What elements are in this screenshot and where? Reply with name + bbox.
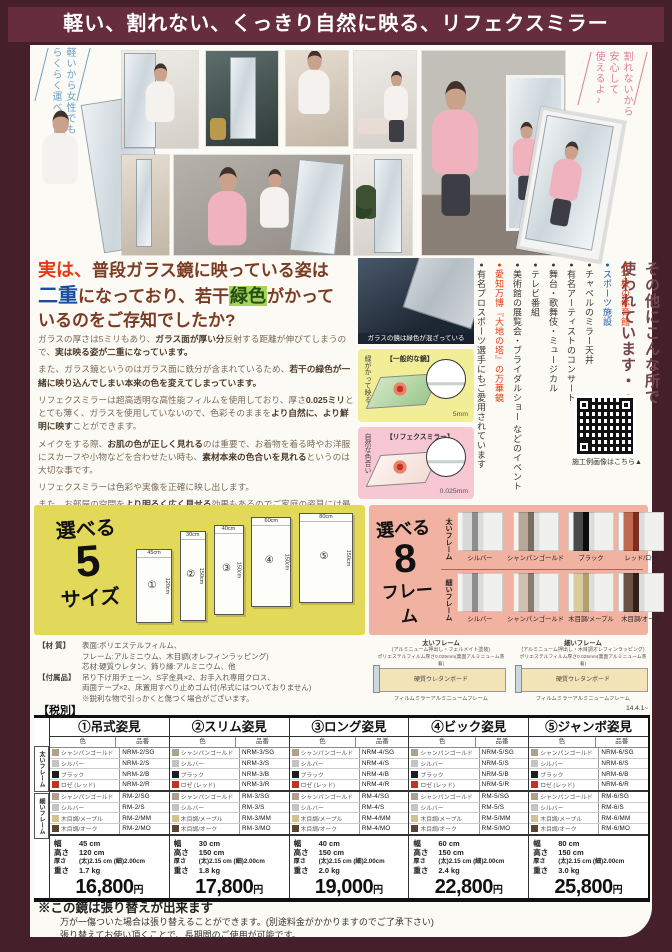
- product-row: 木目調/オークRM-2/MO: [50, 824, 169, 836]
- product-code: RM-5/SG: [479, 792, 529, 802]
- product-code: NRM-5/B: [479, 769, 529, 779]
- size-mirror: 40cm150cm③: [214, 525, 244, 615]
- version-label: 14.4.1~: [626, 705, 648, 712]
- color-chip: [172, 793, 179, 800]
- accessories-label: 【付属品】: [38, 673, 82, 705]
- magnifier-circle: [426, 359, 466, 399]
- color-chip: [411, 815, 418, 822]
- price-column-header: ②スリム姿見: [170, 718, 289, 737]
- spec-label: 重さ: [533, 866, 558, 876]
- note-line: 安心して: [605, 51, 619, 161]
- intro-headline: 実は、普段ガラス鏡に映っている姿は二重になっており、若干緑色がかっているのをご存…: [38, 258, 362, 333]
- product-code: NRM-5/S: [479, 759, 529, 769]
- width-label: 60cm: [252, 518, 290, 526]
- bullet-icon: ●: [586, 262, 593, 270]
- spec-block: 幅60 cm高さ150 cm厚さ(太)2.15 cm (細)2.00cm重さ2.…: [409, 836, 528, 876]
- body-paragraph: また、ガラス鏡というのはガラス面に鉄分が含まれているため、若干の緑色が一緒に映り…: [38, 363, 356, 389]
- qr-finder-pattern: [577, 398, 591, 412]
- frame-swatch-image: [457, 573, 503, 612]
- color-name: 木目調/オーク: [540, 824, 598, 833]
- color-name: シャンパンゴールド: [61, 792, 119, 801]
- product-row: ブラックNRM-3/B: [170, 769, 289, 780]
- thin-frame-row: 細いフレーム シルバーシャンパンゴールド木目調/メープル木目調/オーク: [441, 569, 643, 630]
- spec-value: (太)2.15 cm (細)2.00cm: [438, 858, 504, 866]
- frame-swatch: ブラック: [568, 512, 614, 567]
- accessories-lines: 吊り下げ用チェーン、S字金具×2、お手入れ専用クロス、 両面テープ×2、床置用す…: [82, 673, 311, 705]
- usage-item: ●有名プロスポーツ選手にもご愛用されています: [474, 262, 488, 502]
- frame-swatch-image: [568, 512, 614, 551]
- spec-value: 45 cm: [79, 839, 100, 849]
- footer-note: ※この鏡は張り替えが出来ます 万が一傷ついた場合は張り替えることができます。(別…: [38, 897, 642, 942]
- color-name: シルバー: [301, 803, 359, 812]
- product-code: RM-3/SG: [239, 792, 289, 802]
- spec-label: 高さ: [54, 848, 79, 858]
- color-name: シルバー: [181, 759, 239, 768]
- spec-line: 高さ150 cm: [174, 848, 286, 858]
- spec-value: 60 cm: [438, 839, 459, 849]
- spec-value: 150 cm: [319, 848, 344, 858]
- body-paragraph: リフェクスミラーは色彩や実像を正確に映し出します。: [38, 481, 356, 494]
- thin-frame-label: 細いフレーム: [441, 570, 455, 630]
- thin-frame-cross-section: 細いフレーム (アルミニューム押出し・木目調オレフィンラッピング) ポリエステル…: [518, 638, 648, 704]
- color-name: シャンパンゴールド: [301, 792, 359, 801]
- color-name: ロゼ (レッド): [420, 780, 478, 789]
- product-code: NRM-2/S: [119, 759, 169, 769]
- usage-item: ●美術館の展覧会・ブライダルショー などのイベント: [510, 262, 524, 502]
- subheader-code: 品番: [595, 737, 648, 747]
- stroke-line: [577, 52, 591, 106]
- product-row: 木目調/オークRM-3/MO: [170, 824, 289, 836]
- mirror-shape: [230, 57, 256, 139]
- footer-title: ※この鏡は張り替えが出来ます: [38, 897, 642, 916]
- product-row: ロゼ (レッド)NRM-5/R: [409, 780, 528, 792]
- accessories-line: 吊り下げ用チェーン、S字金具×2、お手入れ専用クロス、: [82, 673, 311, 684]
- product-code: RM-4/MM: [359, 813, 409, 823]
- footer-line: 張り替えてお使い頂くことで、長期間のご使用が可能です。: [60, 929, 642, 942]
- paragraph-segment: また、ガラス鏡というのはガラス面に鉄分が含まれているため、: [38, 364, 289, 374]
- spec-line: 高さ150 cm: [533, 848, 645, 858]
- product-row: 木目調/メープルRM-6/MM: [529, 813, 648, 824]
- color-name: シャンパンゴールド: [540, 792, 598, 801]
- frame-swatch: 木目調/メープル: [568, 573, 614, 628]
- price-subheader: 色品番: [50, 737, 169, 748]
- bullet-icon: ●: [514, 262, 521, 270]
- mirror-shape: [136, 159, 152, 247]
- product-code: RM-6/MO: [598, 824, 648, 834]
- spec-value: 40 cm: [319, 839, 340, 849]
- product-row: シルバーRM-3/S: [170, 803, 289, 814]
- price-column: ⑤ジャンボ姿見色品番シャンパンゴールドNRM-6/SGシルバーNRM-6/Sブラ…: [528, 718, 648, 898]
- usage-item-label: チャペルのミラー天井: [584, 270, 594, 365]
- spec-label: 厚さ: [533, 858, 558, 866]
- product-row: 木目調/メープルRM-4/MM: [290, 813, 409, 824]
- photo-glass-mirror-edge: ガラスの鏡は緑色が混ざっている: [358, 258, 474, 344]
- headline-segment: になっており、若干: [78, 287, 229, 306]
- product-row: シルバーRM-6/S: [529, 803, 648, 814]
- color-chip: [411, 804, 418, 811]
- color-name: シャンパンゴールド: [301, 748, 359, 757]
- width-label: 40cm: [215, 526, 243, 534]
- color-chip: [172, 760, 179, 767]
- frame-swatch-label: レッド/ロゼ: [624, 553, 657, 562]
- group-label-thick: 太いフレーム: [34, 746, 49, 792]
- spec-value: 3.0 kg: [558, 866, 579, 876]
- product-code: RM-6/S: [598, 803, 648, 813]
- color-name: 木目調/メープル: [540, 814, 598, 823]
- spec-line: 高さ150 cm: [294, 848, 406, 858]
- person-figure: [146, 63, 175, 122]
- spec-label: 厚さ: [54, 858, 79, 866]
- color-chip: [52, 749, 59, 756]
- product-row: 木目調/メープルRM-5/MM: [409, 813, 528, 824]
- product-row: ブラックNRM-4/B: [290, 769, 409, 780]
- bullet-icon: ●: [622, 262, 629, 270]
- color-name: シルバー: [540, 759, 598, 768]
- frame-swatch: 木目調/オーク: [618, 573, 664, 628]
- product-row: 木目調/オークRM-4/MO: [290, 824, 409, 836]
- product-code: RM-2/MO: [119, 824, 169, 834]
- photo-hallway-mirror: [206, 51, 278, 146]
- bullet-icon: ●: [478, 262, 485, 270]
- body-paragraph: リフェクスミラーは超高透明な高性能フィルムを使用しており、厚さ0.025ミリとと…: [38, 394, 356, 434]
- product-code: NRM-3/S: [239, 759, 289, 769]
- yen-suffix: 円: [253, 885, 263, 896]
- yen-suffix: 円: [493, 885, 503, 896]
- spec-block: 幅40 cm高さ150 cm厚さ(太)2.15 cm (細)2.00cm重さ2.…: [290, 836, 409, 876]
- color-chip: [292, 804, 299, 811]
- product-row: シルバーNRM-2/S: [50, 759, 169, 770]
- color-chip: [531, 804, 538, 811]
- price-column-header: ⑤ジャンボ姿見: [529, 718, 648, 737]
- thick-frame-row: 太いフレーム シルバーシャンパンゴールドブラックレッド/ロゼ: [441, 509, 643, 569]
- materials-section: 【材 質】 表面:ポリエステルフィルム、 フレーム:アルミニウム、木目調(オレフ…: [38, 641, 372, 704]
- paragraph-segment: ことができます。: [73, 421, 142, 431]
- headline-line: いるのをご存知でしたか?: [38, 310, 362, 333]
- product-row: シルバーNRM-5/S: [409, 759, 528, 770]
- spec-value: 150 cm: [438, 848, 463, 858]
- color-chip: [531, 793, 538, 800]
- spec-label: 厚さ: [174, 858, 199, 866]
- mirror-shape: [289, 159, 344, 255]
- color-chip: [172, 771, 179, 778]
- color-name: シルバー: [301, 759, 359, 768]
- product-row: シャンパンゴールドRM-5/SG: [409, 792, 528, 803]
- bullet-icon: ●: [496, 262, 503, 270]
- spec-label: 厚さ: [413, 858, 438, 866]
- frame-swatch-image: [618, 512, 664, 551]
- usage-item-label: 舞台・歌舞伎・ミュージカル: [548, 270, 558, 394]
- frame-swatch-image: [568, 573, 614, 612]
- spec-line: 重さ1.7 kg: [54, 866, 166, 876]
- spec-label: 幅: [533, 839, 558, 849]
- color-name: 木目調/メープル: [301, 814, 359, 823]
- color-chip: [292, 815, 299, 822]
- materials-line: 芯材:硬質ウレタン、飾り縁:アルミニウム、他: [82, 662, 269, 673]
- qr-finder-pattern: [577, 440, 591, 454]
- headline-segment: 実は、: [38, 260, 92, 280]
- product-row: 木目調/メープルRM-2/MM: [50, 813, 169, 824]
- spec-value: 2.0 kg: [319, 866, 340, 876]
- product-row: シルバーNRM-3/S: [170, 759, 289, 770]
- frame-swatch-label: 木目調/メープル: [568, 614, 613, 623]
- price-value: 22,800円: [409, 876, 528, 898]
- color-name: 木目調/メープル: [61, 814, 119, 823]
- product-row: シルバーNRM-4/S: [290, 759, 409, 770]
- color-chip: [531, 760, 538, 767]
- spec-value: (太)2.15 cm (細)2.00cm: [199, 858, 265, 866]
- materials-label: 【材 質】: [38, 641, 82, 673]
- color-name: シルバー: [540, 803, 598, 812]
- thick-frame-swatches: シルバーシャンパンゴールドブラックレッド/ロゼ: [455, 509, 664, 569]
- price-column-header: ①吊式姿見: [50, 718, 169, 737]
- usage-item: ●テレビ番組: [528, 262, 542, 502]
- frame-swatch-image: [513, 512, 559, 551]
- price-subheader: 色品番: [409, 737, 528, 748]
- photo-caption: ガラスの鏡は緑色が混ざっている: [358, 333, 474, 344]
- price-number: 16,800: [75, 876, 133, 898]
- color-name: ブラック: [540, 770, 598, 779]
- product-row: シャンパンゴールドRM-6/SG: [529, 792, 648, 803]
- color-chip: [52, 815, 59, 822]
- product-row: ブラックNRM-2/B: [50, 769, 169, 780]
- magnifier-circle: [426, 437, 466, 477]
- spec-value: 30 cm: [199, 839, 220, 849]
- color-chip: [172, 749, 179, 756]
- spec-value: 1.8 kg: [199, 866, 220, 876]
- price-column-header: ④ビック姿見: [409, 718, 528, 737]
- product-row: 木目調/オークRM-5/MO: [409, 824, 528, 836]
- frame-note: フィルムミラーアルミニュームフレーム: [518, 694, 648, 702]
- color-chip: [52, 781, 59, 788]
- price-value: 19,000円: [290, 876, 409, 898]
- paragraph-segment: リフェクスミラーは色彩や実像を正確に映し出します。: [38, 482, 254, 492]
- bullet-icon: ●: [550, 262, 557, 270]
- usage-item-label: 愛知万博『大地の塔』の万華鏡: [494, 270, 504, 403]
- yen-suffix: 円: [133, 885, 143, 896]
- spec-line: 厚さ(太)2.15 cm (細)2.00cm: [533, 858, 645, 866]
- spec-line: 高さ150 cm: [413, 848, 525, 858]
- product-code: NRM-3/R: [239, 780, 289, 790]
- color-name: 木目調/オーク: [301, 824, 359, 833]
- qr-caption: 施工例画像はこちら▲: [555, 457, 659, 467]
- subheader-code: 品番: [475, 737, 528, 747]
- product-code: RM-6/SG: [598, 792, 648, 802]
- product-code: NRM-4/R: [359, 780, 409, 790]
- frame-cross-sections: 太いフレーム (アルミニューム押出し・フェルメイト塗装) ポリエステルフィルム厚…: [376, 638, 648, 704]
- product-code: RM-3/MO: [239, 824, 289, 834]
- paragraph-segment: リフェクスミラーは超高透明な高性能フィルムを使用しており、厚さ: [38, 395, 306, 405]
- thick-frame-cross-section: 太いフレーム (アルミニューム押出し・フェルメイト塗装) ポリエステルフィルム厚…: [376, 638, 506, 704]
- product-row: ロゼ (レッド)NRM-4/R: [290, 780, 409, 792]
- spec-line: 重さ2.4 kg: [413, 866, 525, 876]
- product-code: NRM-3/B: [239, 769, 289, 779]
- color-chip: [52, 771, 59, 778]
- color-chip: [172, 825, 179, 832]
- product-row: ブラックNRM-5/B: [409, 769, 528, 780]
- price-number: 17,800: [195, 876, 253, 898]
- color-chip: [52, 825, 59, 832]
- color-name: シルバー: [420, 803, 478, 812]
- photo-narrow-mirror: [122, 155, 169, 255]
- diagram-label: 【一般的な鏡】: [386, 353, 434, 363]
- frame-swatch-image: [618, 573, 664, 612]
- spec-value: 80 cm: [558, 839, 579, 849]
- width-label: 45cm: [137, 550, 171, 558]
- cross-section-title: 太いフレーム: [376, 638, 506, 647]
- spec-label: 厚さ: [294, 858, 319, 866]
- product-code: NRM-4/S: [359, 759, 409, 769]
- price-number: 25,800: [555, 876, 613, 898]
- plant-shape: [356, 185, 376, 225]
- intro-paragraphs: ガラスの厚さは5ミリもあり、ガラス面が厚い分反射する距離が伸びてしまうので、実は…: [38, 333, 356, 529]
- product-code: RM-5/S: [479, 803, 529, 813]
- footer-line: 万が一傷ついた場合は張り替えることができます。(別途料金がかかりますのでご了承下…: [60, 916, 642, 929]
- product-code: RM-5/MO: [479, 824, 529, 834]
- product-row: ロゼ (レッド)NRM-6/R: [529, 780, 648, 792]
- frame-group-column: 太いフレーム 細いフレーム: [34, 718, 49, 898]
- color-chip: [292, 749, 299, 756]
- title-banner: 軽い、割れない、くっきり自然に映る、リフェクスミラー: [8, 7, 664, 42]
- thin-frame-swatches: シルバーシャンパンゴールド木目調/メープル木目調/オーク: [455, 570, 664, 630]
- color-name: シルバー: [61, 759, 119, 768]
- size-number: ④: [252, 555, 286, 566]
- yen-suffix: 円: [613, 885, 623, 896]
- headline-segment: 二重: [38, 285, 78, 307]
- color-name: ブラック: [61, 770, 119, 779]
- color-name: ロゼ (レッド): [181, 780, 239, 789]
- color-name: 木目調/メープル: [181, 814, 239, 823]
- product-code: RM-3/MM: [239, 813, 289, 823]
- person-figure: [298, 51, 329, 114]
- spec-line: 厚さ(太)2.15 cm (細)2.00cm: [54, 858, 166, 866]
- subheader-color: 色: [290, 737, 355, 747]
- body-paragraph: ガラスの厚さは5ミリもあり、ガラス面が厚い分反射する距離が伸びてしまうので、実は…: [38, 333, 356, 359]
- spec-block: 幅80 cm高さ150 cm厚さ(太)2.15 cm (細)2.00cm重さ3.…: [529, 836, 648, 876]
- color-name: ブラック: [301, 770, 359, 779]
- subheader-color: 色: [409, 737, 474, 747]
- price-subheader: 色品番: [290, 737, 409, 748]
- spec-line: 幅30 cm: [174, 839, 286, 849]
- price-column: ③ロング姿見色品番シャンパンゴールドNRM-4/SGシルバーNRM-4/Sブラッ…: [289, 718, 409, 898]
- paragraph-segment: ガラスの厚さは5ミリもあり、: [38, 334, 155, 344]
- film-note: ポリエステルフィルム厚さ0.025mm(裏面アルミニューム蒸着): [376, 653, 506, 667]
- product-code: RM-2/SG: [119, 792, 169, 802]
- headline-segment: がかって: [267, 287, 334, 306]
- spec-value: (太)2.15 cm (細)2.00cm: [558, 858, 624, 866]
- paragraph-segment: 0.025ミリ: [306, 395, 345, 405]
- person-figure: [384, 71, 408, 142]
- color-chip: [52, 760, 59, 767]
- spec-value: 150 cm: [558, 848, 583, 858]
- color-chip: [172, 781, 179, 788]
- product-code: NRM-6/R: [598, 780, 648, 790]
- price-subheader: 色品番: [529, 737, 648, 748]
- color-name: ブラック: [181, 770, 239, 779]
- body-paragraph: メイクをする際、お肌の色が正しく見れるのは重要で、お着物を着る時やお洋服にスカー…: [38, 438, 356, 478]
- color-name: ロゼ (レッド): [61, 780, 119, 789]
- flyer-page: 軽いから女性でも らくらく運べるよ♪ 割れないから 安心して 使えるよ♪: [30, 45, 652, 937]
- diagram-normal-mirror: 【一般的な鏡】 緑がかって映る 5mm: [358, 349, 474, 422]
- color-name: シャンパンゴールド: [420, 748, 478, 757]
- product-row: シャンパンゴールドNRM-4/SG: [290, 748, 409, 759]
- size-number: ①: [137, 580, 167, 591]
- sizes-box: 選べる 5 サイズ 45cm120cm①30cm150cm②40cm150cm③…: [34, 505, 365, 635]
- usage-item-label: 美術館の展覧会・ブライダルショー などのイベント: [512, 270, 522, 492]
- usage-item-label: 学校の体育館: [620, 270, 630, 327]
- photo-wiping-mirror: [122, 51, 198, 148]
- color-chip: [292, 771, 299, 778]
- frame-swatch-image: [457, 512, 503, 551]
- spec-line: 重さ1.8 kg: [174, 866, 286, 876]
- spec-block: 幅45 cm高さ120 cm厚さ(太)2.15 cm (細)2.00cm重さ1.…: [50, 836, 169, 876]
- frames-title-bottom: フレーム: [373, 575, 442, 629]
- color-name: シャンパンゴールド: [181, 792, 239, 801]
- spec-value: (太)2.15 cm (細)2.00cm: [79, 858, 145, 866]
- chair-shape: [210, 118, 226, 140]
- color-chip: [292, 793, 299, 800]
- sizes-title: 選べる 5 サイズ: [41, 510, 136, 614]
- color-name: 木目調/メープル: [420, 814, 478, 823]
- color-name: シルバー: [181, 803, 239, 812]
- photo-children-with-mirror: [174, 155, 350, 255]
- price-value: 25,800円: [529, 876, 648, 898]
- color-name: シャンパンゴールド: [61, 748, 119, 757]
- color-name: ブラック: [420, 770, 478, 779]
- product-code: RM-3/S: [239, 803, 289, 813]
- spec-label: 幅: [294, 839, 319, 849]
- color-name: シャンパンゴールド: [420, 792, 478, 801]
- price-column: ④ビック姿見色品番シャンパンゴールドNRM-5/SGシルバーNRM-5/Sブラッ…: [408, 718, 528, 898]
- product-row: シルバーRM-5/S: [409, 803, 528, 814]
- frame-swatch: シルバー: [457, 573, 503, 628]
- product-code: RM-4/S: [359, 803, 409, 813]
- spec-value: 2.4 kg: [438, 866, 459, 876]
- size-mirror: 60cm150cm④: [251, 517, 291, 607]
- qr-code: [577, 398, 633, 454]
- color-chip: [531, 815, 538, 822]
- spec-line: 厚さ(太)2.15 cm (細)2.00cm: [174, 858, 286, 866]
- price-value: 16,800円: [50, 876, 169, 898]
- frame-swatch-image: [513, 573, 559, 612]
- frame-swatch-label: シルバー: [467, 553, 492, 562]
- accessories-line: 両面テープ×2、床置用すべり止めゴム付(吊式にはついておりません): [82, 683, 311, 694]
- spec-value: 1.7 kg: [79, 866, 100, 876]
- product-row: 木目調/オークRM-6/MO: [529, 824, 648, 836]
- product-code: NRM-6/B: [598, 769, 648, 779]
- thickness-label: 0.025mm: [440, 488, 468, 495]
- handwritten-note-right: 割れないから 安心して 使えるよ♪: [577, 51, 647, 161]
- usage-item: ●愛知万博『大地の塔』の万華鏡: [492, 262, 506, 502]
- product-row: シャンパンゴールドRM-4/SG: [290, 792, 409, 803]
- subheader-color: 色: [50, 737, 115, 747]
- price-subheader: 色品番: [170, 737, 289, 748]
- color-chip: [52, 804, 59, 811]
- person-figure: [432, 81, 478, 216]
- size-mirror-staircase: 45cm120cm①30cm150cm②40cm150cm③60cm150cm④…: [136, 533, 353, 623]
- color-chip: [411, 825, 418, 832]
- product-row: シャンパンゴールドRM-3/SG: [170, 792, 289, 803]
- bullet-icon: ●: [604, 262, 611, 270]
- color-chip: [411, 760, 418, 767]
- photo-mirror-with-plant: [354, 155, 412, 255]
- price-value: 17,800円: [170, 876, 289, 898]
- mirror-shape: [403, 258, 474, 329]
- width-label: 80cm: [300, 514, 352, 522]
- spec-label: 高さ: [294, 848, 319, 858]
- frame-swatch-label: シルバー: [467, 614, 492, 623]
- person-figure: [208, 167, 246, 245]
- usage-item-label: テレビ番組: [530, 270, 540, 318]
